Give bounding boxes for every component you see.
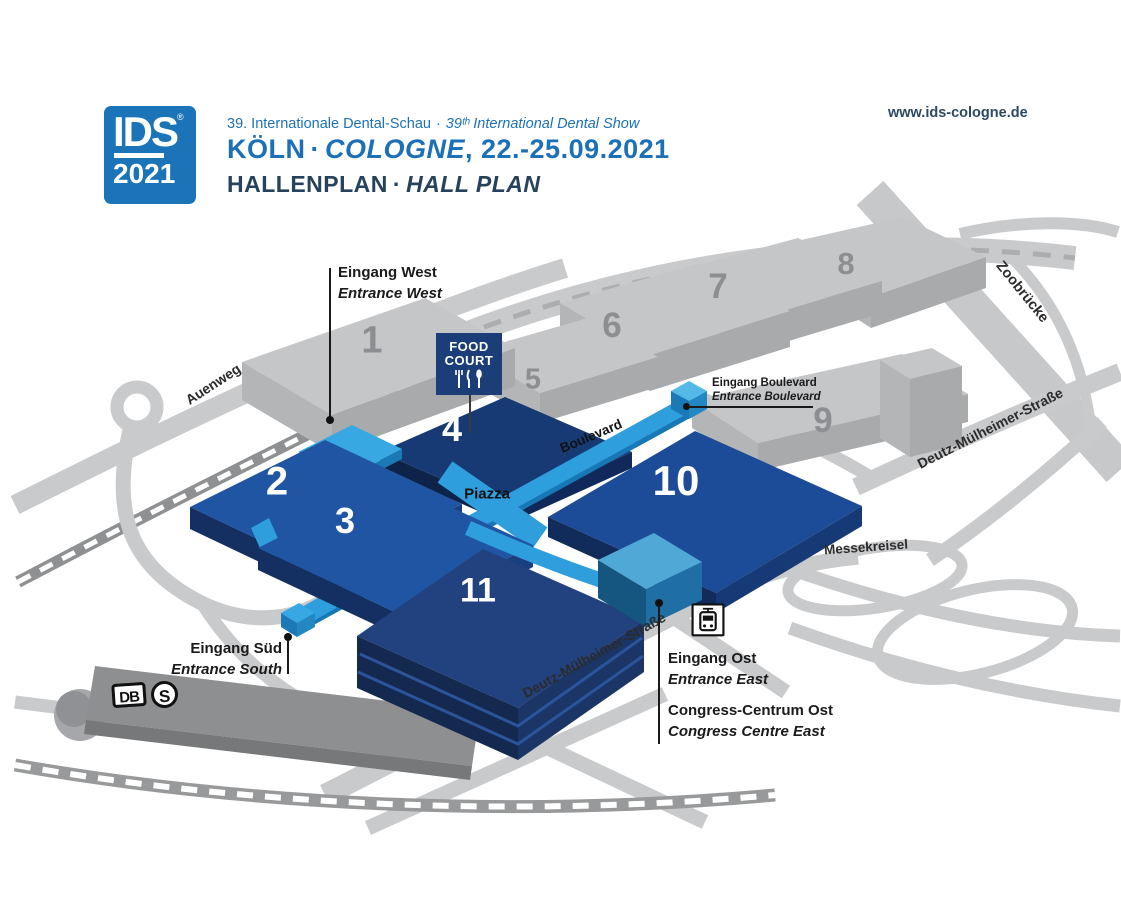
hall-4-label: 4 xyxy=(442,408,462,450)
entrance-east-en: Entrance East xyxy=(668,669,768,690)
hall-8-label: 8 xyxy=(837,246,854,282)
hall-7-label: 7 xyxy=(708,267,727,307)
foodcourt-sign: FOOD COURT xyxy=(436,333,502,395)
foodcourt-line2: COURT xyxy=(436,354,502,368)
congress-centre-label: Congress-Centrum Ost Congress Centre Eas… xyxy=(668,700,833,742)
hall-5-label: 5 xyxy=(525,364,541,397)
hall-3-label: 3 xyxy=(335,500,355,542)
hall-6-label: 6 xyxy=(602,306,621,346)
entrance-south-label: Eingang Süd Entrance South xyxy=(152,638,282,680)
db-railway-logo: DB xyxy=(111,682,147,708)
tram-station-icon xyxy=(690,601,726,637)
entrance-east-de: Eingang Ost xyxy=(668,648,768,669)
entrance-west-label: Eingang West Entrance West xyxy=(338,262,442,304)
hall-2-label: 2 xyxy=(266,460,288,505)
hall-11-label: 11 xyxy=(460,572,496,611)
congress-centre-de: Congress-Centrum Ost xyxy=(668,700,833,721)
entrance-west-leader-line xyxy=(329,268,331,420)
entrance-west-marker xyxy=(326,416,334,424)
entrance-south-de: Eingang Süd xyxy=(152,638,282,659)
entrance-boulevard-label: Eingang Boulevard Entrance Boulevard xyxy=(712,376,821,405)
utensils-icon xyxy=(452,369,486,389)
entrance-east-label: Eingang Ost Entrance East xyxy=(668,648,768,690)
entrance-south-en: Entrance South xyxy=(152,659,282,680)
foodcourt-sign-pole xyxy=(469,395,471,433)
entrance-boulevard-en: Entrance Boulevard xyxy=(712,390,821,404)
entrance-south-leader-line xyxy=(287,640,289,674)
hall-9-label: 9 xyxy=(813,401,832,441)
hall-1-label: 1 xyxy=(361,320,382,363)
hall-plan-page: IDS® 2021 39. Internationale Dental-Scha… xyxy=(0,0,1121,900)
entrance-boulevard-leader-line xyxy=(688,406,813,408)
entrance-boulevard-de: Eingang Boulevard xyxy=(712,376,821,390)
foodcourt-line1: FOOD xyxy=(436,340,502,354)
hall-10-label: 10 xyxy=(653,457,700,505)
entrance-west-en: Entrance West xyxy=(338,283,442,304)
entrance-west-de: Eingang West xyxy=(338,262,442,283)
entrance-east-leader-line xyxy=(658,606,660,744)
congress-centre-en: Congress Centre East xyxy=(668,721,833,742)
piazza-label: Piazza xyxy=(464,486,510,503)
